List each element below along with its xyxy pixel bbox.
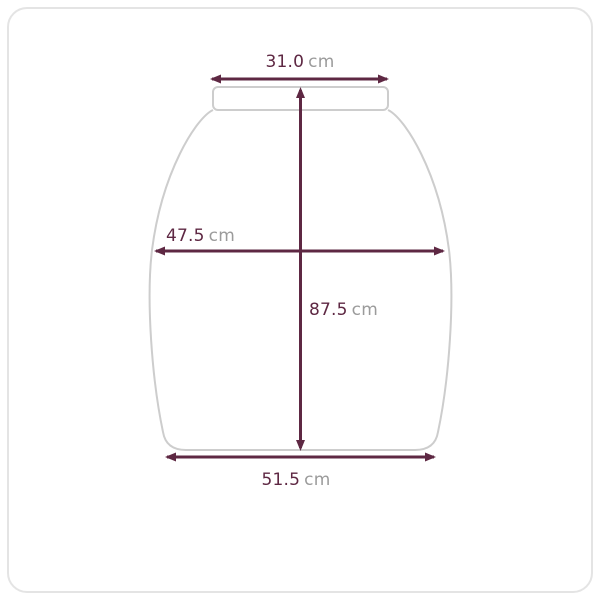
middle-width-arrow-left (154, 247, 165, 256)
bottom-width-arrow-left (165, 453, 176, 462)
middle-width-value: 47.5 (166, 226, 205, 246)
bottom-width-unit: cm (304, 470, 330, 490)
length-value: 87.5 (309, 300, 348, 320)
length-arrow-top (296, 87, 305, 98)
top-width-arrow-right (378, 75, 389, 84)
length-label: 87.5cm (309, 301, 378, 320)
bottom-width-label: 51.5cm (262, 471, 331, 490)
middle-width-arrow-right (434, 247, 445, 256)
bottom-width-arrow-right (425, 453, 436, 462)
top-width-value: 31.0 (266, 52, 305, 72)
top-width-label: 31.0cm (266, 53, 335, 72)
measurement-diagram-page: 31.0cm 47.5cm 87.5cm 51.5cm (0, 0, 600, 600)
middle-width-unit: cm (209, 226, 235, 246)
length-unit: cm (352, 300, 378, 320)
top-width-unit: cm (308, 52, 334, 72)
middle-width-label: 47.5cm (166, 227, 235, 246)
top-width-arrow-left (210, 75, 221, 84)
bottom-width-value: 51.5 (262, 470, 301, 490)
garment-diagram (0, 0, 600, 600)
